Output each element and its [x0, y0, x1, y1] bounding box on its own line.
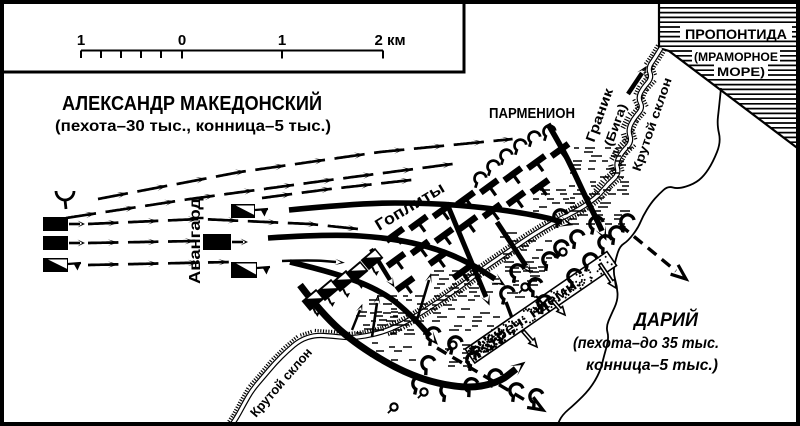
- svg-text:1: 1: [77, 32, 85, 49]
- svg-text:0: 0: [178, 32, 186, 49]
- svg-text:2 км: 2 км: [374, 32, 405, 49]
- svg-text:МОРЕ): МОРЕ): [717, 65, 765, 79]
- svg-text:(пехота–30 тыс., конница–5 тыс: (пехота–30 тыс., конница–5 тыс.): [55, 118, 331, 135]
- svg-text:(пехота–до 35 тыс.: (пехота–до 35 тыс.: [573, 335, 719, 352]
- svg-text:ДАРИЙ: ДАРИЙ: [632, 309, 698, 331]
- svg-text:ПАРМЕНИОН: ПАРМЕНИОН: [489, 105, 575, 122]
- svg-text:(МРАМОРНОЕ: (МРАМОРНОЕ: [694, 50, 778, 64]
- svg-text:1: 1: [278, 32, 286, 49]
- svg-text:ПРОПОНТИДА: ПРОПОНТИДА: [685, 26, 787, 42]
- svg-text:АЛЕКСАНДР МАКЕДОНСКИЙ: АЛЕКСАНДР МАКЕДОНСКИЙ: [62, 91, 322, 115]
- svg-text:конница–5 тыс.): конница–5 тыс.): [586, 357, 718, 374]
